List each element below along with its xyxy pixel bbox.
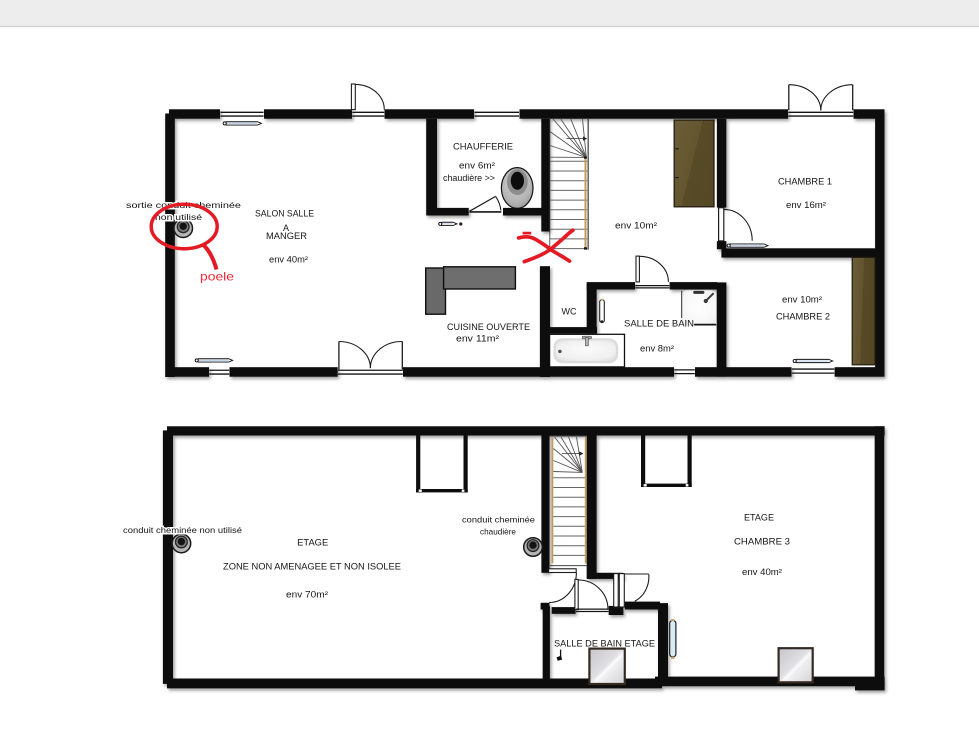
svg-text:MANGER: MANGER: [266, 231, 308, 241]
svg-text:conduit cheminée non utilisé: conduit cheminée non utilisé: [123, 525, 242, 535]
svg-text:ETAGE: ETAGE: [744, 512, 774, 522]
svg-text:env 11m²: env 11m²: [456, 334, 499, 344]
svg-text:CHAUFFERIE: CHAUFFERIE: [453, 142, 513, 152]
svg-text:chaudière >>: chaudière >>: [443, 173, 495, 183]
svg-text:env 40m²: env 40m²: [269, 254, 308, 264]
svg-text:non utilisé: non utilisé: [155, 212, 202, 222]
svg-text:WC: WC: [562, 307, 577, 317]
svg-text:env 16m²: env 16m²: [786, 200, 826, 210]
svg-text:env 40m²: env 40m²: [742, 567, 782, 577]
svg-text:CHAMBRE 2: CHAMBRE 2: [776, 311, 830, 321]
svg-text:chaudière: chaudière: [480, 527, 516, 537]
svg-text:CHAMBRE 3: CHAMBRE 3: [734, 537, 790, 547]
svg-text:CHAMBRE 1: CHAMBRE 1: [778, 176, 832, 186]
svg-text:env 8m²: env 8m²: [640, 343, 674, 353]
svg-text:SALON SALLE: SALON SALLE: [255, 209, 314, 219]
svg-text:ETAGE: ETAGE: [297, 537, 328, 547]
svg-text:SALLE DE BAIN: SALLE DE BAIN: [624, 319, 694, 329]
svg-text:conduit cheminée: conduit cheminée: [462, 514, 535, 524]
svg-text:ZONE NON AMENAGEE ET NON ISOLE: ZONE NON AMENAGEE ET NON ISOLEE: [223, 561, 401, 571]
svg-text:env 6m²: env 6m²: [459, 161, 495, 171]
svg-text:env 10m²: env 10m²: [782, 294, 822, 304]
svg-text:poele: poele: [200, 270, 235, 284]
svg-text:env 70m²: env 70m²: [286, 590, 328, 600]
svg-text:SALLE DE BAIN ETAGE: SALLE DE BAIN ETAGE: [554, 638, 655, 648]
svg-text:env 10m²: env 10m²: [615, 221, 657, 231]
svg-text:CUISINE OUVERTE: CUISINE OUVERTE: [447, 322, 530, 332]
